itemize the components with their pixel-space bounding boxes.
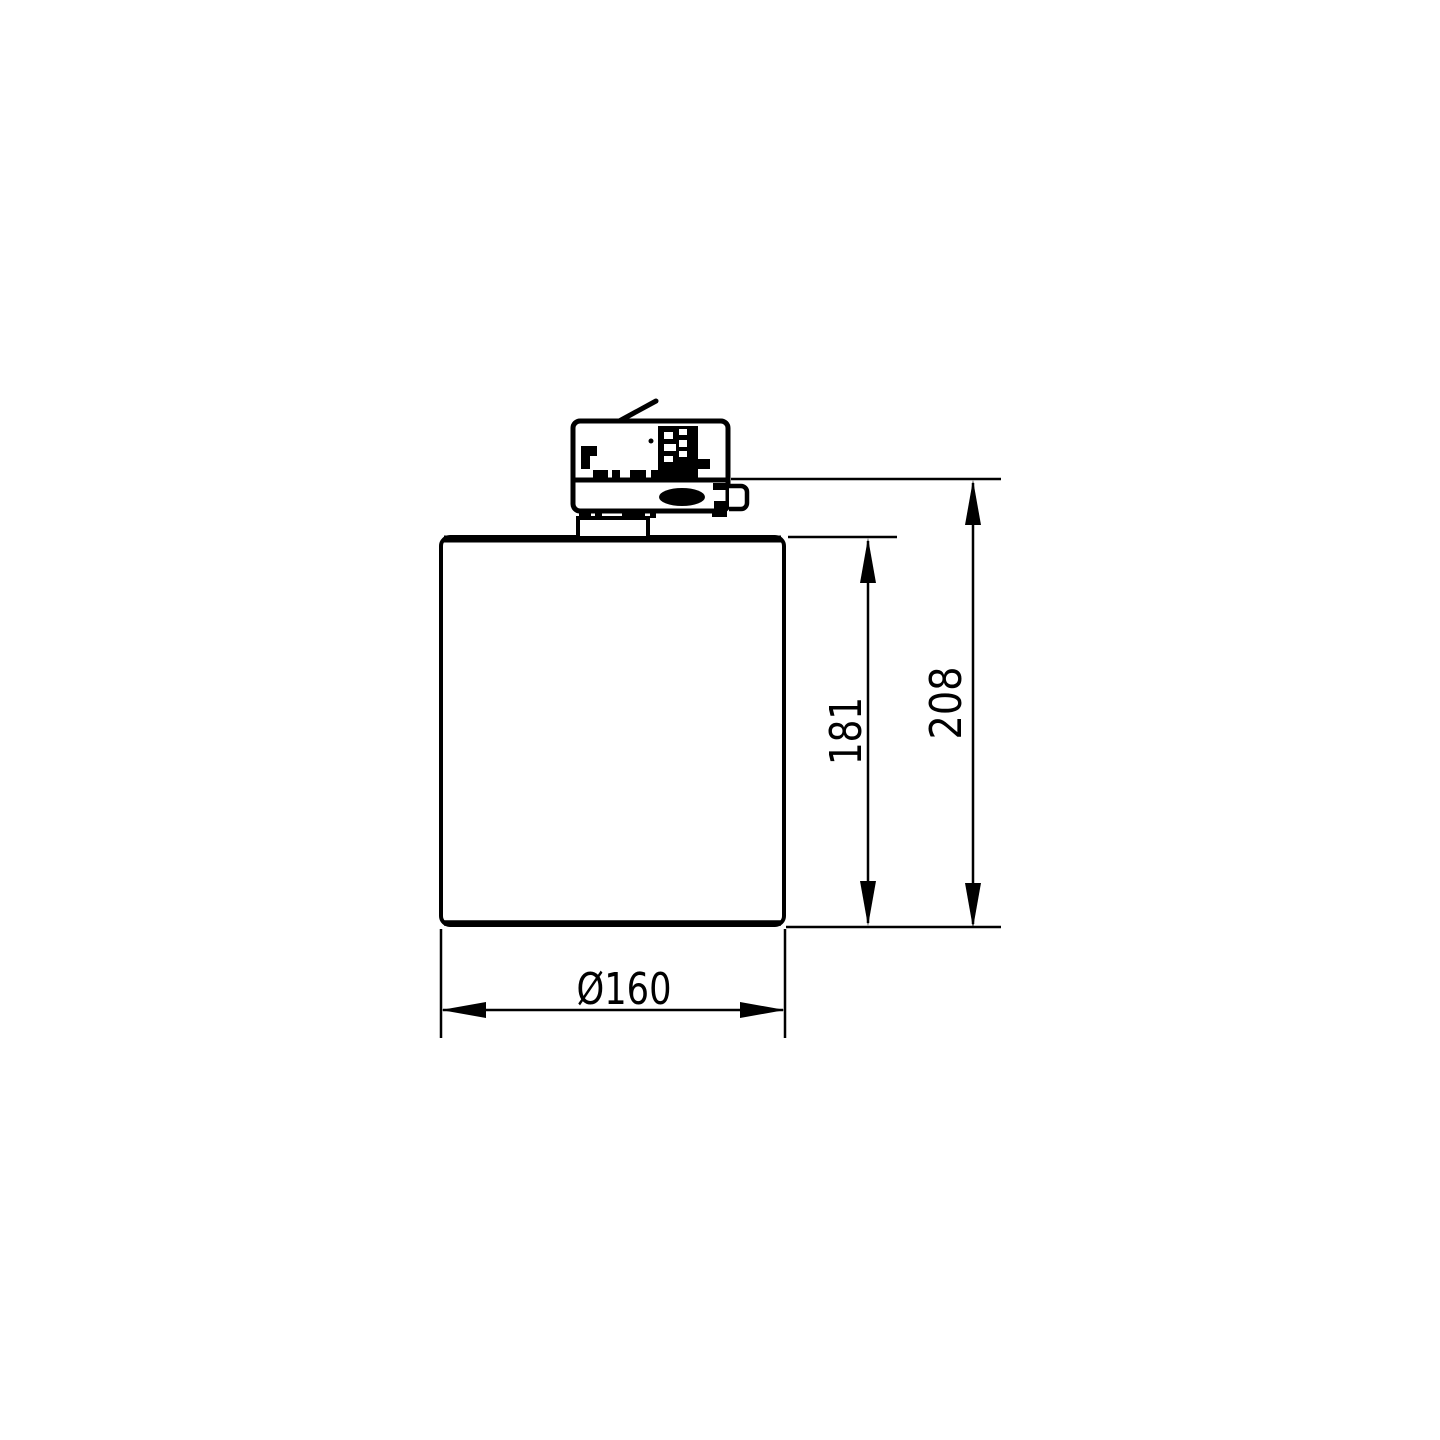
mounting-stem [578,518,648,538]
dimension-diameter: Ø160 [441,964,785,1018]
adapter-side-hook [729,486,747,509]
luminaire-body [441,537,784,925]
arrowhead-181-down [860,881,876,926]
arrowhead-208-up [965,480,981,525]
drawing-page: 181 208 Ø160 [0,0,1440,1440]
track-adapter [573,401,747,518]
dimension-body-height: 181 [821,538,876,926]
dimension-drawing: 181 208 Ø160 [0,0,1440,1440]
dim-label-181: 181 [821,697,872,765]
arrowhead-160-right [740,1002,785,1018]
arrowhead-208-down [965,883,981,928]
dim-label-208: 208 [921,667,972,740]
arrowhead-160-left [441,1002,486,1018]
dimension-total-height: 208 [921,480,981,928]
arrowhead-181-up [860,538,876,583]
dim-label-diameter: Ø160 [577,964,672,1015]
